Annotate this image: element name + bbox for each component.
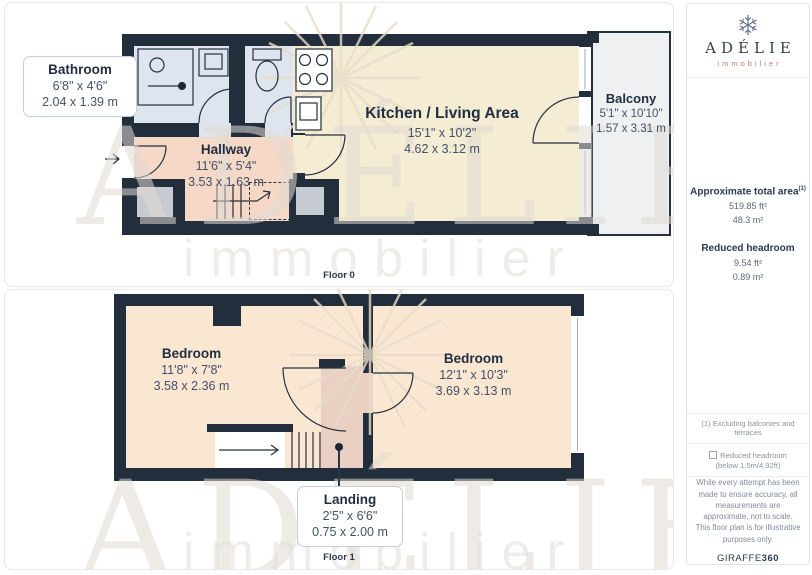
- bedroom-right-window: [571, 316, 584, 453]
- balcony-stub-bottom: [587, 224, 599, 236]
- floor1-tag: Floor 1: [5, 552, 673, 563]
- area-summary-section: Approximate total area(1) 519.85 ft² 48.…: [687, 78, 809, 414]
- kitchen-label: Kitchen / Living Area 15'1" x 10'2" 4.62…: [322, 104, 562, 158]
- kitchen-window-bottom: [579, 149, 591, 217]
- reduced-headroom-m: 0.89 m²: [687, 272, 809, 282]
- bedroom-left-label: Bedroom 11'8" x 7'8" 3.58 x 2.36 m: [119, 346, 264, 394]
- niche-left: [137, 187, 173, 217]
- landing-label: Landing 2'5" x 6'6" 0.75 x 2.00 m: [297, 486, 403, 547]
- agency-name: ADÉLIE: [700, 39, 796, 57]
- bathroom-label: Bathroom 6'8" x 4'6" 2.04 x 1.39 m: [23, 56, 137, 117]
- wc-floor: [245, 46, 293, 123]
- stairs-side-wall: [207, 424, 293, 432]
- top-wall-notch: [213, 306, 241, 326]
- landing-right-door-gap: [363, 373, 373, 413]
- hallway-label: Hallway 11'6" x 5'4" 3.53 x 1.63 m: [156, 142, 296, 190]
- agency-logo: ADÉLIE immobilier: [687, 4, 809, 78]
- total-area-heading: Approximate total area(1): [687, 186, 809, 197]
- landing-floor: [321, 366, 363, 468]
- info-sidebar: ADÉLIE immobilier Approximate total area…: [686, 3, 810, 565]
- total-area-m: 48.3 m²: [687, 215, 809, 225]
- footnote-headroom: Reduced headroom (below 1.5m/4.92ft): [687, 444, 809, 477]
- floor0-tag: Floor 0: [5, 270, 673, 281]
- disclaimer-text: While every attempt has been made to ens…: [695, 477, 801, 545]
- giraffe360-logo: GIRAFFE360: [717, 553, 779, 564]
- balcony-stub-top: [587, 31, 599, 43]
- bathroom-floor: [134, 46, 229, 123]
- landing-connector-line: [338, 448, 340, 488]
- disclaimer-section: While every attempt has been made to ens…: [687, 477, 809, 564]
- footnote-balconies: (1) Excluding balconies and terraces: [687, 414, 809, 444]
- kitchen-window-top: [579, 47, 591, 91]
- entry-opening: [122, 146, 134, 178]
- agency-subtitle: immobilier: [714, 59, 781, 68]
- floorplan-page: { "watermark": { "brand": "ADÉLIE", "sub…: [0, 0, 812, 575]
- floor1-plan-panel: ADÉLIE immobilier Bedroom 11'8" x 7'8" 3…: [4, 289, 674, 570]
- snowflake-logo-icon: [736, 13, 760, 37]
- total-area-ft: 519.85 ft²: [687, 201, 809, 211]
- stairs-void: [215, 432, 285, 468]
- niche-right: [296, 187, 324, 215]
- floor0-plan-panel: ADÉLIE immobilier Bathroom 6'8" x 4'6" 2…: [4, 2, 674, 287]
- wc-door-gap: [265, 123, 291, 137]
- bedroom-right-label: Bedroom 12'1" x 10'3" 3.69 x 3.13 m: [391, 351, 556, 399]
- headroom-legend-swatch: [709, 451, 717, 459]
- reduced-headroom-ft: 9.54 ft²: [687, 258, 809, 268]
- landing-top-wall: [319, 359, 345, 368]
- bathroom-door-gap: [199, 123, 231, 137]
- reduced-headroom-heading: Reduced headroom: [687, 243, 809, 254]
- landing-connector-dot: [335, 443, 343, 451]
- footnote-ref: (1): [799, 186, 806, 192]
- balcony-label: Balcony 5'1" x 10'10" 1.57 x 3.31 m: [589, 91, 673, 136]
